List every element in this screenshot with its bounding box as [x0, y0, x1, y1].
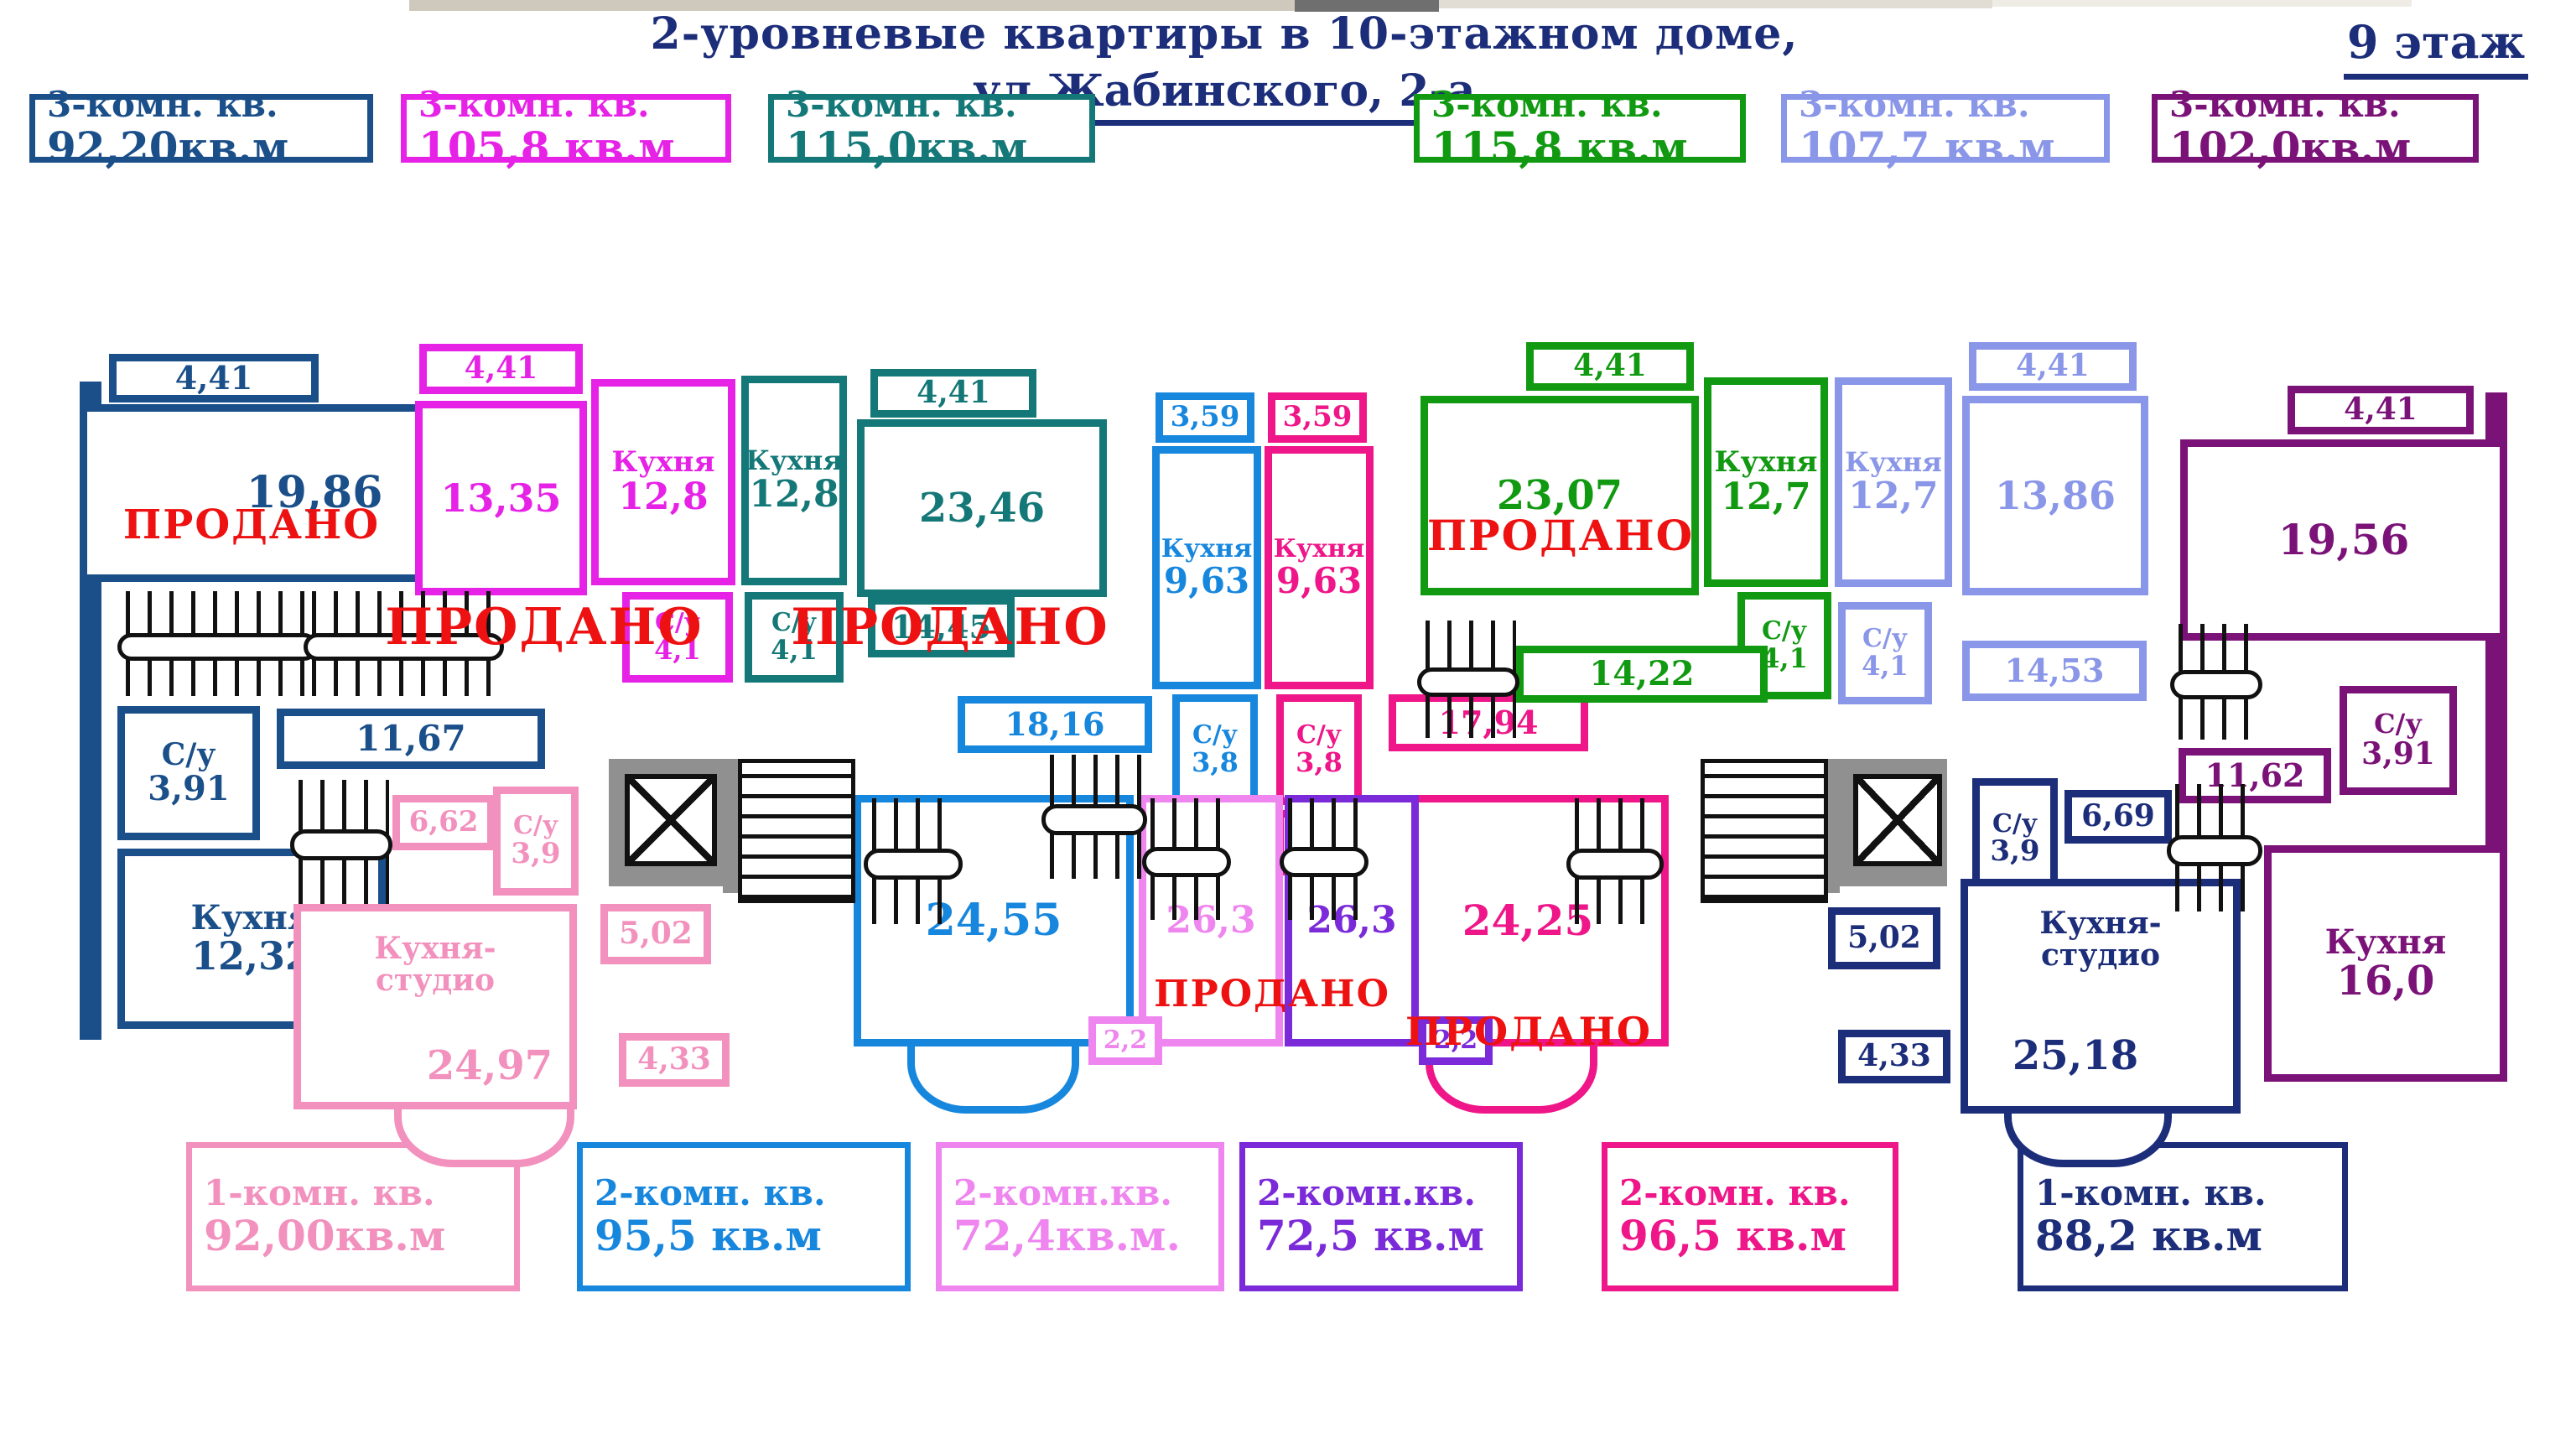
teal-room-23-46: 23,46: [857, 419, 1107, 597]
orchid-balcony-2-2: 2,2: [1088, 1016, 1162, 1065]
room-label: 3,8: [1296, 749, 1343, 777]
room-label: 3,59: [1171, 402, 1240, 433]
room-label: С/у: [1192, 722, 1238, 749]
legend-rooms-label: 2-комн. кв.: [1619, 1175, 1893, 1212]
bay-window-blue: [907, 1045, 1079, 1114]
room-label: 9,63: [1164, 563, 1249, 600]
room-label: С/у: [513, 813, 558, 839]
room-label: 14,22: [1589, 657, 1694, 692]
legend-rooms-label: 2-комн. кв.: [595, 1175, 905, 1212]
crimson-balcony-3-59: 3,59: [1268, 392, 1367, 443]
stairs-handrail: [1142, 847, 1231, 877]
navy-left-hall-11-67: 11,67: [277, 709, 545, 769]
legend-apartment-2room-95-5: 2-комн. кв. 95,5 кв.м: [577, 1142, 911, 1291]
navy-right-area-25-18: 25,18: [1979, 1030, 2172, 1082]
stairs-handrail: [1041, 804, 1147, 835]
purple-wc-3-91: С/у3,91: [2340, 686, 2457, 795]
magenta-room-13-35: 13,35: [415, 401, 587, 595]
room-label: С/у: [2374, 710, 2423, 739]
navy-left-wc-3-91: С/у3,91: [117, 706, 260, 840]
room-label: 4,41: [917, 377, 990, 409]
room-label: 3,59: [1283, 402, 1353, 433]
stairs-handrail: [2170, 670, 2262, 699]
room-label: 12,8: [618, 478, 708, 517]
photo-strip-fragment: [1992, 0, 2412, 7]
sold-stamp-teal-hall-14-45: ПРОДАНО: [751, 594, 1149, 661]
stairs-icon-crimson: [1575, 798, 1660, 924]
green-balcony-4-41: 4,41: [1526, 342, 1694, 391]
teal-balcony-4-41: 4,41: [870, 369, 1036, 418]
room-label: 3,9: [511, 839, 560, 870]
magenta-kitchen-12-8: Кухня12,8: [591, 379, 735, 585]
room-label: Кухня: [2325, 925, 2447, 960]
room-label: 4,41: [1573, 351, 1647, 382]
room-label: 4,1: [1761, 645, 1808, 673]
elevator-x-icon: [625, 774, 717, 865]
stairs-handrail: [1566, 849, 1664, 880]
teal-kitchen-12-8: Кухня12,8: [741, 376, 847, 585]
room-label: С/у: [1992, 811, 2038, 838]
room-label: 11,67: [356, 720, 466, 757]
room-label: 12,7: [1848, 477, 1938, 516]
room-label: 4,41: [465, 353, 538, 385]
legend-area-label: 95,5 кв.м: [595, 1213, 905, 1259]
room-label: 2,2: [1104, 1027, 1147, 1054]
room-label: 4,41: [2016, 351, 2090, 382]
room-label: 4,33: [1857, 1041, 1931, 1072]
navy-left-balcony-4-41: 4,41: [109, 354, 319, 402]
wall-segment: [723, 759, 740, 893]
blue-hall-18-16: 18,16: [958, 696, 1152, 753]
lavender-kitchen-12-7: Кухня12,7: [1835, 377, 1952, 587]
room-label: 12,7: [1721, 478, 1810, 517]
room-label: 13,86: [1995, 475, 2116, 516]
green-room-23-07: 23,07: [1420, 396, 1699, 595]
room-label: 3,9: [1990, 837, 2039, 867]
green-kitchen-12-7: Кухня12,7: [1704, 377, 1828, 587]
room-label: 18,16: [1005, 708, 1105, 741]
room-label: 9,63: [1276, 563, 1362, 600]
stairs-handrail: [2167, 835, 2262, 866]
room-label: Кухня: [612, 448, 715, 478]
legend-area-label: 72,5 кв.м: [1257, 1213, 1517, 1259]
stairs-icon-navy-left: [126, 591, 314, 696]
legend-apartment-2room-96-5: 2-комн. кв. 96,5 кв.м: [1602, 1142, 1898, 1291]
room-label: Кухня: [745, 447, 843, 475]
room-label: 25,18: [2012, 1035, 2138, 1077]
room-label: С/у: [1862, 626, 1908, 652]
stairs-handrail: [1417, 667, 1519, 697]
pink-hall-5-02: 5,02: [600, 904, 711, 964]
elevator-x-icon: [1853, 774, 1942, 865]
room-label: Кухня-: [2039, 908, 2161, 940]
room-label: 4,1: [1862, 652, 1909, 681]
stairs-handrail: [117, 633, 318, 661]
legend-area-label: 96,5 кв.м: [1619, 1213, 1893, 1259]
stairs-icon-teal: [1050, 755, 1144, 879]
room-label: 13,35: [440, 478, 561, 518]
photo-strip-fragment: [1295, 0, 1439, 12]
room-label: Кухня: [1715, 448, 1818, 478]
room-label: Кухня: [1161, 536, 1253, 563]
legend-area-label: 72,4кв.м.: [953, 1213, 1218, 1259]
room-label: С/у: [162, 740, 216, 771]
stairs-icon-purple: [2179, 624, 2259, 740]
pink-area-24-97: 24,97: [401, 1040, 579, 1092]
room-label: 3,91: [148, 771, 229, 807]
legend-area-label: 92,00кв.м: [204, 1213, 514, 1259]
purple-kitchen-16-0: Кухня16,0: [2264, 845, 2507, 1082]
legend-apartment-2room-72-5: 2-комн.кв. 72,5 кв.м: [1239, 1142, 1523, 1291]
blue-balcony-3-59: 3,59: [1156, 392, 1254, 443]
magenta-balcony-4-41: 4,41: [419, 344, 583, 394]
stairs-handrail: [290, 829, 392, 860]
room-label: студио: [2041, 940, 2160, 972]
legend-area-label: 88,2 кв.м: [2035, 1213, 2342, 1259]
legend-rooms-label: 2-комн.кв.: [1257, 1175, 1517, 1212]
room-label: 23,46: [919, 487, 1045, 529]
lavender-balcony-4-41: 4,41: [1969, 342, 2137, 391]
legend-rooms-label: 1-комн. кв.: [2035, 1175, 2342, 1212]
lavender-room-13-86: 13,86: [1962, 396, 2148, 595]
room-label: Кухня: [1274, 536, 1365, 563]
core-stairwell-icon: [1701, 759, 1828, 903]
stairs-icon-navy-right: [2175, 784, 2259, 911]
purple-balcony-4-41: 4,41: [2288, 386, 2474, 434]
room-label: Кухня: [1845, 449, 1942, 477]
room-label: 12,8: [749, 475, 839, 514]
navy-right-hall-5-02: 5,02: [1828, 907, 1940, 969]
room-label: 4,33: [637, 1044, 711, 1076]
green-hall-14-22: 14,22: [1516, 646, 1768, 703]
stairs-icon-violet: [1288, 798, 1365, 920]
crimson-wc-3-8: С/у3,8: [1276, 694, 1362, 805]
room-label: 4,41: [175, 361, 253, 395]
sold-stamp-orchid-room-26-3: ПРОДАНО: [1144, 968, 1400, 1020]
pink-hall-4-33: 4,33: [619, 1033, 730, 1087]
stairs-icon-green: [1426, 621, 1516, 738]
photo-strip-fragment: [409, 0, 1295, 11]
legend-apartment-2room-72-4: 2-комн.кв. 72,4кв.м.: [936, 1142, 1224, 1291]
room-label: С/у: [1296, 722, 1342, 749]
room-label: 19,56: [2278, 518, 2410, 563]
elevator-shaft-icon: [1838, 759, 1947, 886]
sold-stamp-crimson-room-24-25: ПРОДАНО: [1390, 1005, 1667, 1058]
pink-hall-6-62: 6,62: [392, 795, 495, 850]
sold-stamp-navy-left-room-19-86: ПРОДАНО: [99, 498, 404, 552]
lavender-wc-4-1: С/у4,1: [1838, 602, 1932, 704]
room-label: 14,53: [2005, 654, 2105, 688]
stairs-icon-blue: [872, 798, 959, 924]
stairs-handrail: [1280, 847, 1368, 877]
room-label: 4,41: [2344, 394, 2418, 426]
room-label: 3,91: [2361, 739, 2435, 771]
room-label: 16,0: [2337, 960, 2435, 1002]
room-label: 6,62: [409, 808, 479, 838]
sold-stamp-green-room-23-07: ПРОДАНО: [1422, 506, 1699, 563]
room-label: 5,02: [619, 918, 693, 950]
navy-right-hall-4-33: 4,33: [1838, 1030, 1950, 1083]
lavender-hall-14-53: 14,53: [1962, 641, 2147, 701]
room-label: Кухня-: [374, 933, 496, 965]
room-label: 24,25: [1462, 899, 1594, 943]
room-label: 3,8: [1192, 749, 1239, 777]
room-label: 6,69: [2081, 801, 2155, 833]
room-label: 24,97: [427, 1045, 553, 1087]
blue-kitchen-9-63: Кухня9,63: [1152, 446, 1261, 689]
stairs-icon-orchid: [1150, 798, 1228, 920]
legend-rooms-label: 1-комн. кв.: [204, 1175, 514, 1212]
purple-room-19-56: 19,56: [2180, 439, 2507, 641]
bay-window-pink: [394, 1105, 574, 1167]
room-label: 5,02: [1847, 922, 1921, 954]
stairs-handrail: [864, 849, 963, 880]
legend-rooms-label: 2-комн.кв.: [953, 1175, 1218, 1212]
stairs-icon-pink: [299, 780, 389, 904]
elevator-shaft-icon: [609, 759, 723, 886]
room-label: С/у: [1762, 618, 1807, 645]
navy-right-hall-6-69: 6,69: [2064, 790, 2172, 844]
pink-wc-3-9: С/у3,9: [493, 787, 579, 896]
blue-wc-3-8: С/у3,8: [1172, 694, 1258, 805]
crimson-kitchen-9-63: Кухня9,63: [1265, 446, 1374, 689]
core-stairwell-icon: [738, 759, 855, 903]
room-label: студио: [376, 965, 495, 997]
photo-strip-fragment: [1439, 0, 1992, 8]
sold-stamp-magenta-lower: ПРОДАНО: [369, 594, 719, 661]
